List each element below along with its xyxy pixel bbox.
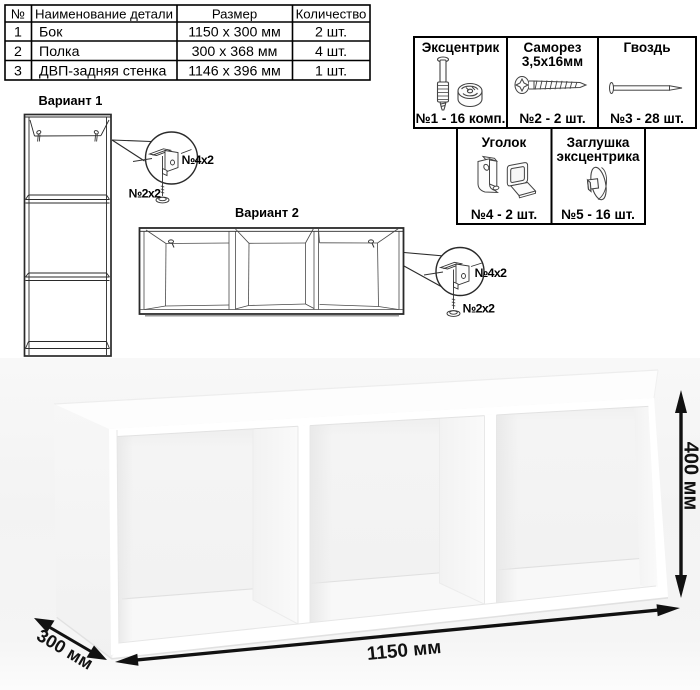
- svg-text:1146 х 396 мм: 1146 х 396 мм: [188, 64, 281, 80]
- svg-text:№4х2: №4х2: [475, 266, 508, 280]
- svg-text:2 шт.: 2 шт.: [315, 25, 347, 41]
- svg-text:№2х2: №2х2: [463, 302, 496, 316]
- svg-text:№3 - 28 шт.: №3 - 28 шт.: [610, 111, 684, 126]
- svg-text:эксцентрика: эксцентрика: [557, 149, 640, 164]
- svg-text:400 мм: 400 мм: [680, 442, 700, 511]
- svg-text:Уголок: Уголок: [482, 135, 527, 150]
- svg-text:Бок: Бок: [39, 25, 63, 41]
- svg-text:Эксцентрик: Эксцентрик: [422, 40, 500, 55]
- svg-text:№: №: [11, 7, 25, 22]
- svg-text:№1 - 16 комп.: №1 - 16 комп.: [416, 111, 506, 126]
- svg-text:№2 - 2 шт.: №2 - 2 шт.: [519, 111, 585, 126]
- svg-text:3,5х16мм: 3,5х16мм: [522, 54, 583, 69]
- svg-text:№4х2: №4х2: [182, 153, 215, 167]
- svg-text:Вариант 2: Вариант 2: [235, 205, 299, 220]
- svg-text:4 шт.: 4 шт.: [315, 44, 347, 60]
- svg-text:2: 2: [14, 44, 22, 60]
- svg-text:3: 3: [14, 64, 22, 80]
- svg-text:Наименование детали: Наименование детали: [35, 7, 173, 22]
- svg-text:Гвоздь: Гвоздь: [623, 40, 670, 55]
- svg-text:№2х2: №2х2: [129, 187, 162, 201]
- svg-text:Саморез: Саморез: [524, 40, 582, 55]
- svg-text:1150 х 300 мм: 1150 х 300 мм: [188, 25, 281, 41]
- svg-text:№4 - 2 шт.: №4 - 2 шт.: [471, 207, 537, 222]
- svg-text:Размер: Размер: [212, 7, 257, 22]
- svg-text:№5 - 16 шт.: №5 - 16 шт.: [561, 207, 635, 222]
- svg-text:ДВП-задняя стенка: ДВП-задняя стенка: [39, 64, 166, 80]
- svg-text:Полка: Полка: [39, 44, 80, 60]
- svg-text:Заглушка: Заглушка: [567, 135, 630, 150]
- svg-text:300 х 368 мм: 300 х 368 мм: [192, 44, 278, 60]
- svg-text:1 шт.: 1 шт.: [315, 64, 347, 80]
- svg-text:Количество: Количество: [296, 7, 367, 22]
- svg-text:Вариант 1: Вариант 1: [39, 93, 103, 108]
- svg-text:1: 1: [14, 25, 22, 41]
